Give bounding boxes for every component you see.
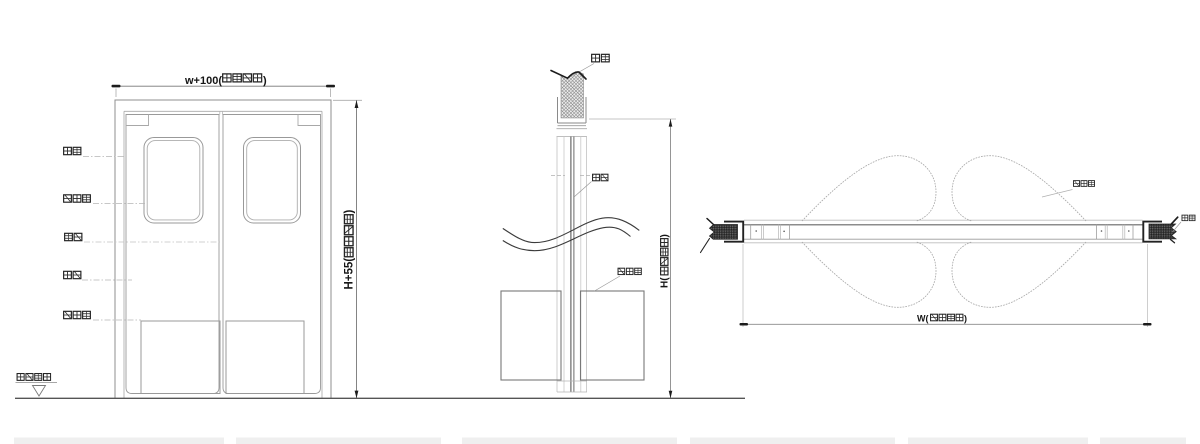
svg-text:): ) (660, 234, 671, 237)
svg-text:): ) (344, 210, 356, 214)
svg-text:W(: W( (917, 314, 929, 324)
svg-text:H+55(: H+55( (344, 258, 356, 290)
svg-text:w+100(: w+100( (184, 75, 222, 87)
svg-text:): ) (964, 314, 967, 324)
svg-text:H(: H( (660, 277, 671, 288)
svg-text:): ) (263, 75, 267, 87)
